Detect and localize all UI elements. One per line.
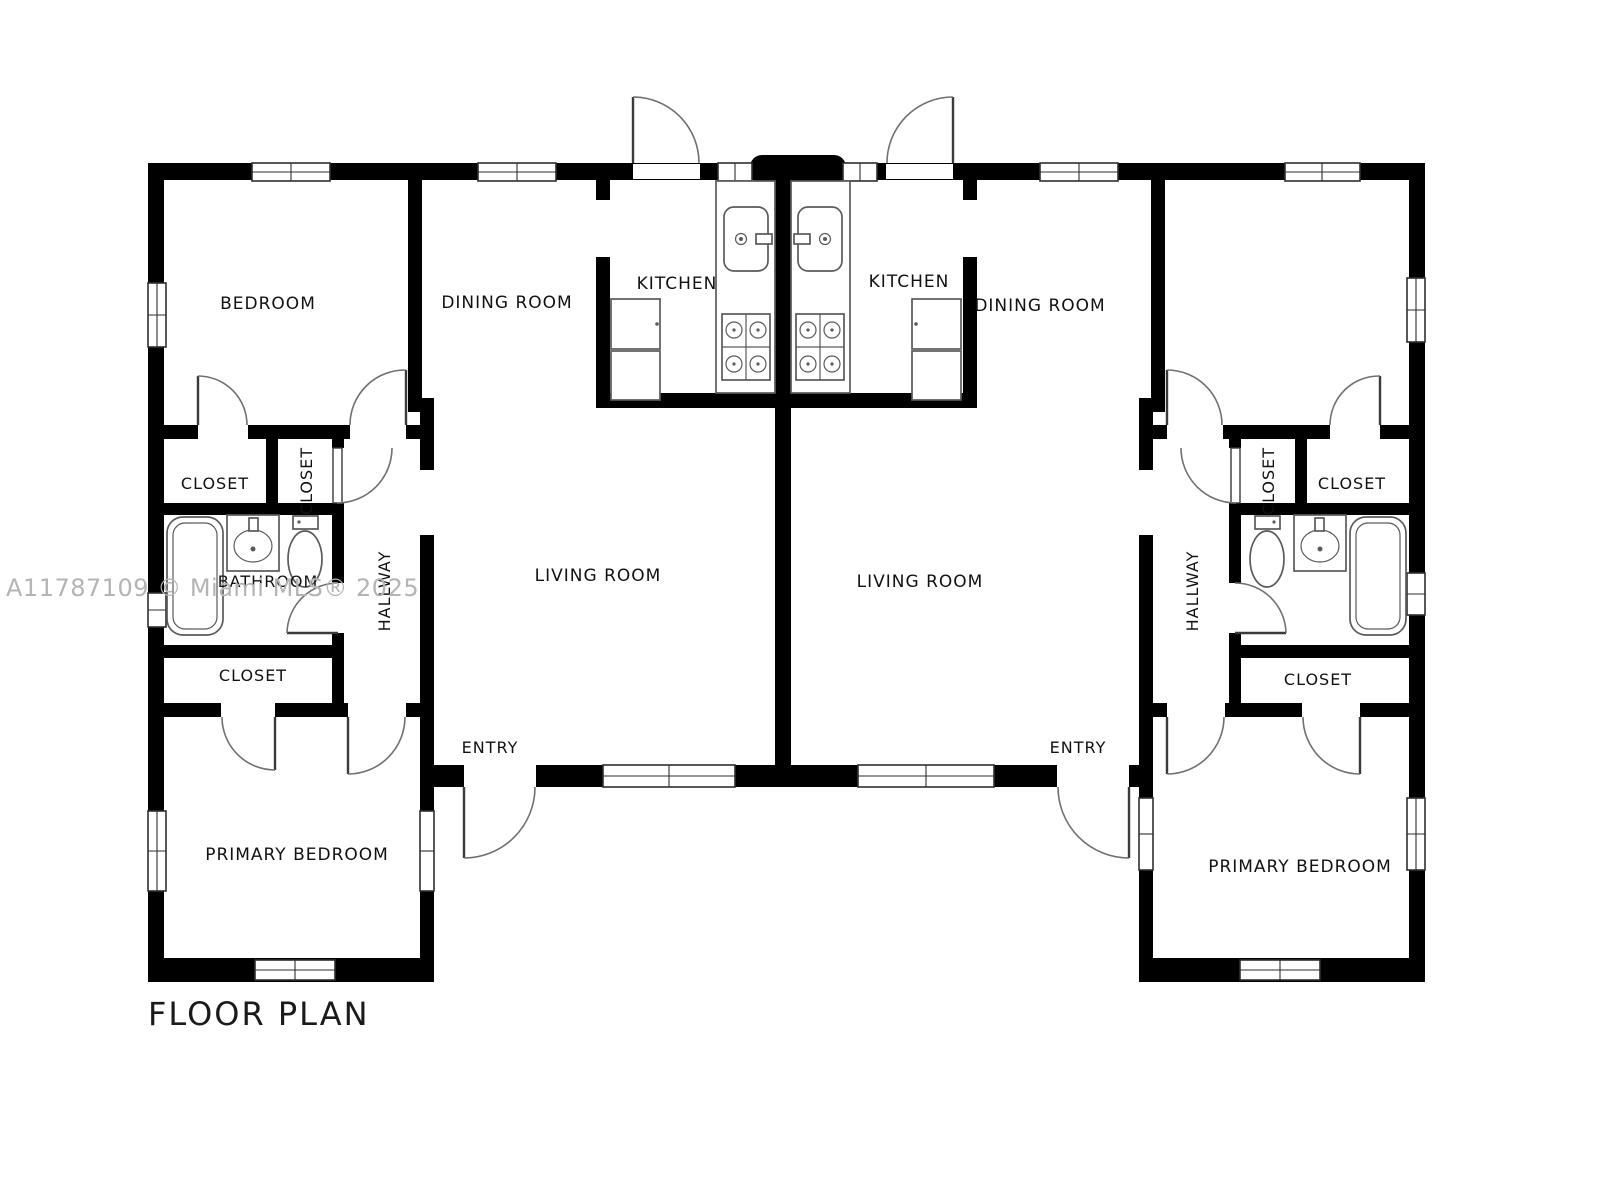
label-living-right: LIVING ROOM [857, 572, 984, 592]
window-bedroom-right-wall [1407, 278, 1425, 342]
door-bedroom-main-right [1167, 370, 1222, 425]
window-bedroom-top-right [1285, 163, 1360, 181]
bathtub-icon [1350, 517, 1406, 635]
watermark: A11787109 © Miami MLS® 2025 [6, 574, 419, 602]
window-bedroom-top-left [252, 163, 330, 181]
label-hallway-right: HALLWAY [1183, 551, 1202, 632]
refrigerator-icon [611, 299, 660, 349]
window-dining-top-right [1040, 163, 1118, 181]
cabinet-icon [611, 351, 660, 400]
label-dining-left: DINING ROOM [441, 293, 572, 313]
door-primary-closet-right [1303, 717, 1360, 774]
door-primary-hallway-right [1167, 717, 1224, 774]
sink-icon [1294, 515, 1346, 571]
door-bathroom-right [1235, 583, 1286, 633]
window-bathroom-right-wall [1407, 573, 1425, 615]
label-kitchen-left: KITCHEN [637, 274, 718, 294]
label-primary-right: PRIMARY BEDROOM [1208, 857, 1392, 877]
label-bedroom-left: BEDROOM [220, 294, 316, 314]
stove-icon [796, 314, 844, 380]
exterior-door-kitchen-right [887, 97, 953, 163]
kitchen-sink-icon [724, 207, 772, 271]
window-primary-courtyard-right [1139, 798, 1153, 870]
door-bedroom-main-left [350, 370, 406, 425]
cabinet-icon [912, 351, 961, 400]
kitchen-sink-icon [794, 207, 842, 271]
window-primary-left-wall [148, 811, 166, 891]
label-closet-lower-right: CLOSET [1284, 670, 1352, 689]
window-bedroom-left-wall [148, 283, 166, 347]
door-side-closet-right [1181, 448, 1240, 503]
window-primary-right-wall [1407, 798, 1425, 870]
exterior-door-kitchen-left [633, 97, 699, 163]
label-entry-left: ENTRY [462, 738, 519, 757]
toilet-icon [1250, 516, 1284, 587]
center-porch-step [750, 155, 846, 183]
sink-icon [227, 515, 279, 571]
label-living-left: LIVING ROOM [535, 566, 662, 586]
page-title: FLOOR PLAN [148, 995, 370, 1033]
kitchen-door-opening-left [633, 164, 700, 179]
label-closet-side-left: CLOSET [297, 447, 316, 515]
entry-door-left [464, 787, 535, 858]
kitchen-door-opening-right [886, 164, 953, 179]
window-living-bottom-right [858, 765, 994, 787]
label-entry-right: ENTRY [1050, 738, 1107, 757]
door-primary-hallway-left [348, 717, 405, 774]
window-primary-bottom-right [1240, 960, 1320, 980]
floor-plan-canvas: BEDROOM DINING ROOM KITCHEN LIVING ROOM … [0, 0, 1600, 1185]
door-bedroom-closet-right [1330, 376, 1380, 425]
window-primary-bottom-left [255, 960, 335, 980]
window-living-bottom-left [603, 765, 735, 787]
stove-icon [722, 314, 770, 380]
door-side-closet-left [333, 448, 392, 503]
window-kitchen-top-left [718, 163, 752, 181]
label-dining-right: DINING ROOM [974, 296, 1105, 316]
window-primary-courtyard-left [420, 811, 434, 891]
bathroom-fixtures-right [1250, 515, 1406, 635]
label-primary-left: PRIMARY BEDROOM [205, 845, 389, 865]
label-closet-side-right: CLOSET [1259, 447, 1278, 515]
label-closet-upper-left: CLOSET [181, 474, 249, 493]
window-kitchen-top-right [843, 163, 877, 181]
door-primary-closet-left [222, 717, 275, 770]
door-bedroom-closet-left [198, 376, 247, 425]
window-dining-top-left [478, 163, 556, 181]
label-closet-lower-left: CLOSET [219, 666, 287, 685]
refrigerator-icon [912, 299, 961, 349]
label-closet-upper-right: CLOSET [1318, 474, 1386, 493]
entry-door-right [1058, 787, 1129, 858]
label-kitchen-right: KITCHEN [869, 272, 950, 292]
